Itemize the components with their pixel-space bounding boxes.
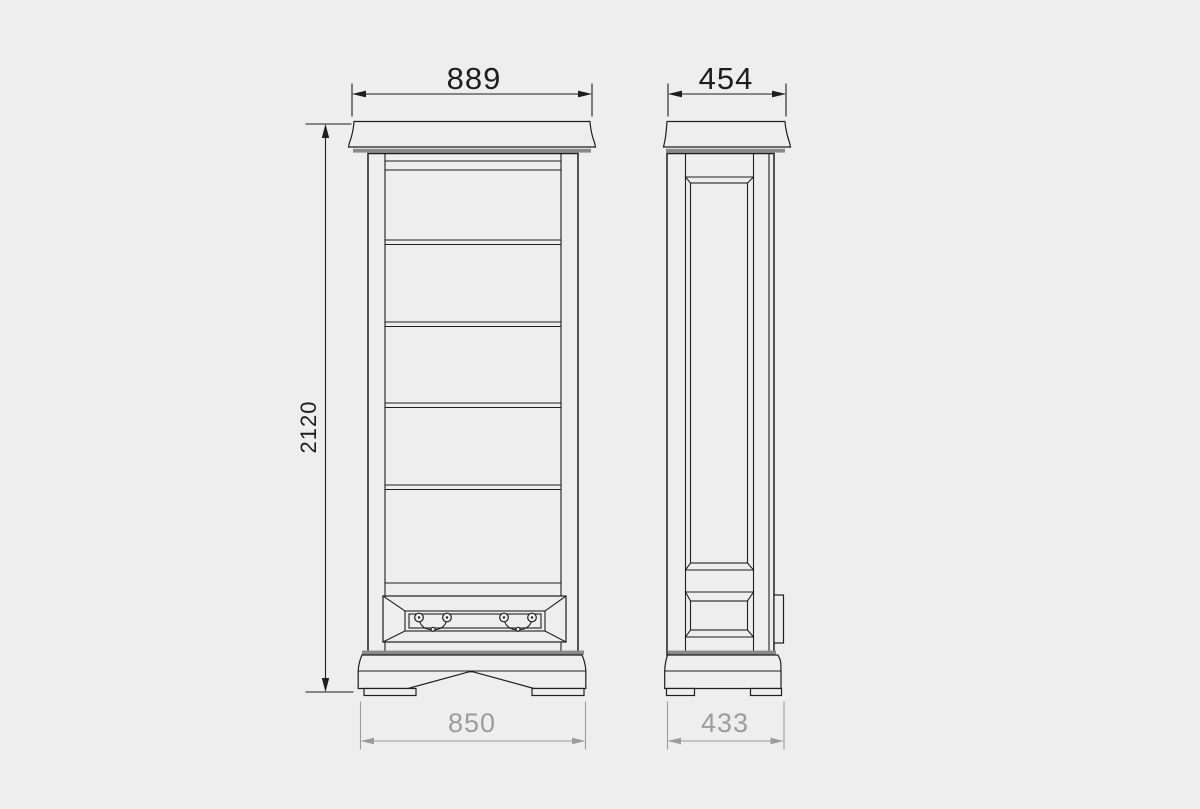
dimension-label-side-depth: 454 bbox=[699, 63, 754, 94]
front-view-drawing bbox=[349, 122, 596, 696]
dimension-label-front-base-width: 850 bbox=[448, 710, 496, 737]
side-plinth bbox=[665, 651, 782, 696]
line-art bbox=[0, 0, 1200, 809]
side-carcass bbox=[667, 154, 774, 656]
dimension-label-front-height: 2120 bbox=[298, 401, 320, 454]
front-drawer bbox=[383, 596, 566, 642]
side-cornice-shadow-band bbox=[666, 149, 785, 153]
front-cornice-shadow-band bbox=[353, 149, 591, 153]
side-foot-left bbox=[667, 689, 695, 696]
dimension-label-side-base-depth: 433 bbox=[701, 710, 749, 737]
front-carcass bbox=[368, 154, 578, 656]
front-cornice bbox=[349, 122, 596, 148]
side-cornice bbox=[664, 122, 791, 148]
side-foot-right bbox=[751, 689, 782, 696]
front-top-rail bbox=[385, 161, 561, 170]
front-foot-left bbox=[364, 689, 416, 696]
side-back-bracket bbox=[774, 595, 784, 643]
side-view-drawing bbox=[664, 122, 791, 696]
side-panel-upper bbox=[686, 177, 754, 570]
front-foot-right bbox=[532, 689, 584, 696]
dimension-label-front-width: 889 bbox=[447, 63, 502, 94]
side-panel-lower bbox=[686, 592, 754, 637]
front-plinth bbox=[358, 651, 586, 696]
front-shelves bbox=[385, 240, 561, 583]
technical-drawing-canvas: 889 454 2120 850 433 bbox=[0, 0, 1200, 809]
